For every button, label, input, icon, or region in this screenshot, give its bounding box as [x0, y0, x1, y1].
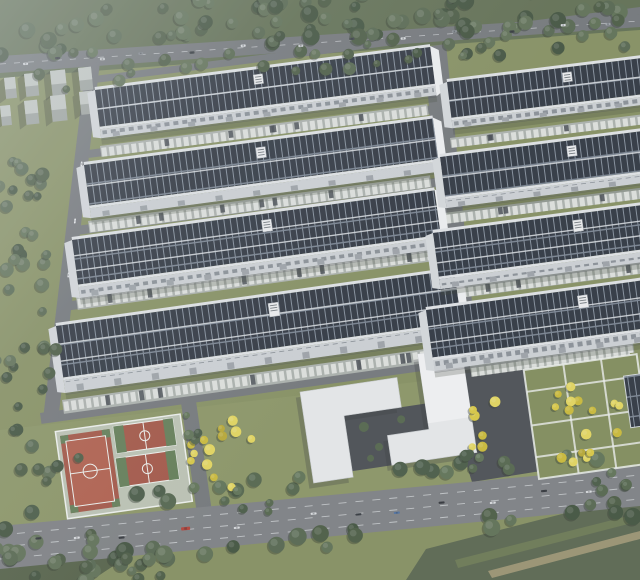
dock-door [533, 191, 541, 196]
tree-highlight [14, 245, 19, 250]
car-glass [140, 53, 142, 55]
parked-car [564, 125, 569, 132]
dock-door [355, 253, 363, 259]
tree-highlight [82, 562, 88, 568]
car-glass [81, 163, 82, 165]
tree-highlight [203, 461, 208, 466]
parked-car [359, 114, 364, 122]
tree-highlight [70, 49, 74, 53]
dock-door [188, 121, 196, 126]
tree-highlight [40, 344, 45, 349]
tree-highlight [14, 159, 18, 163]
car-glass [236, 527, 238, 528]
tree-highlight [627, 510, 635, 518]
tree-highlight [229, 542, 235, 548]
car-glass [102, 58, 104, 60]
rendering-canvas [0, 0, 640, 580]
dock-door [152, 373, 160, 380]
tree-highlight [3, 373, 8, 378]
tree-highlight [205, 446, 210, 451]
tree-highlight [201, 17, 207, 23]
dock-door [489, 276, 497, 282]
tree-highlight [345, 50, 350, 55]
tree-highlight [614, 429, 618, 433]
tree-highlight [388, 34, 394, 40]
tree-highlight [296, 46, 302, 52]
tree-highlight [470, 407, 474, 411]
tree-highlight [478, 44, 483, 49]
dock-door [634, 337, 640, 343]
tree-highlight [567, 507, 574, 514]
dock-door [279, 264, 287, 270]
tree-highlight [5, 285, 10, 290]
car-glass [121, 537, 123, 538]
tree-highlight [21, 344, 26, 349]
tree-highlight [365, 42, 368, 45]
dock-door [242, 269, 250, 275]
tree-highlight [374, 61, 377, 64]
tree-highlight [53, 461, 58, 466]
tree-highlight [558, 454, 563, 459]
tree-highlight [582, 430, 587, 435]
tree-highlight [462, 26, 468, 32]
tree-highlight [566, 407, 570, 411]
car-glass [300, 45, 302, 47]
tree-highlight [479, 443, 484, 448]
car-glass [607, 23, 609, 25]
tree-highlight [259, 62, 264, 67]
dock-door [339, 102, 347, 107]
tree-highlight [486, 38, 491, 43]
dock-door [227, 362, 235, 369]
dock-door [264, 357, 272, 364]
tree-highlight [118, 544, 126, 552]
block-roof [78, 67, 92, 81]
car-glass [37, 538, 39, 539]
block-roof [24, 100, 38, 114]
car [509, 30, 514, 33]
tree-highlight [85, 546, 92, 553]
tree-highlight [11, 255, 16, 260]
tree-highlight [2, 264, 8, 270]
tree-highlight [219, 426, 222, 429]
dock-door [558, 347, 566, 353]
dock-door [366, 175, 374, 181]
tree-highlight [229, 417, 234, 422]
dock-door [609, 182, 617, 187]
car [605, 23, 610, 26]
tree-highlight [395, 464, 402, 471]
car [241, 44, 246, 47]
tree-highlight [312, 50, 316, 54]
tree-highlight [353, 31, 360, 38]
dock-door [565, 266, 573, 272]
tree-highlight [491, 398, 496, 403]
block-roof [50, 94, 66, 110]
tree-highlight [596, 2, 601, 7]
tree-highlight [219, 432, 223, 436]
tree-highlight [176, 12, 183, 19]
dock-door [571, 186, 579, 191]
tree-highlight [249, 474, 256, 481]
car-glass [242, 45, 244, 47]
dock-door [226, 116, 234, 121]
tree-highlight [479, 432, 483, 436]
tree-highlight [579, 32, 584, 37]
dock-door [615, 103, 622, 108]
tree-highlight [115, 76, 120, 81]
car-glass [68, 274, 69, 276]
dock-door [527, 271, 535, 277]
tree-highlight [43, 477, 47, 481]
tree-highlight [623, 482, 627, 486]
car-glass [588, 491, 590, 492]
tree-highlight [414, 49, 418, 53]
parked-car [294, 122, 299, 130]
dock-door [114, 378, 122, 385]
tree-highlight [520, 17, 526, 23]
tree-highlight [37, 280, 43, 286]
tree-highlight [260, 4, 266, 10]
tree-highlight [89, 535, 95, 541]
tree-highlight [273, 17, 278, 22]
tree-highlight [321, 14, 327, 20]
tree-highlight [295, 473, 300, 478]
dock-door [91, 289, 99, 295]
tree-highlight [288, 484, 294, 490]
tree-highlight [248, 436, 252, 440]
car [100, 58, 105, 61]
parked-car [489, 134, 494, 141]
tree-highlight [614, 16, 620, 22]
tree-highlight [500, 457, 506, 463]
tree-highlight [552, 14, 559, 21]
tree-highlight [148, 542, 155, 549]
tree-highlight [504, 465, 509, 470]
tree-highlight [232, 428, 237, 433]
tree-highlight [554, 43, 560, 49]
tree-highlight [161, 55, 166, 60]
dock-door [577, 108, 584, 113]
dock-door [414, 92, 422, 97]
tree-highlight [255, 28, 260, 33]
tree-highlight [226, 50, 231, 55]
tree-highlight [122, 554, 127, 559]
tree-highlight [103, 5, 108, 10]
tree-highlight [45, 467, 51, 473]
dock-door [76, 383, 84, 390]
car-glass [402, 38, 404, 40]
tree-highlight [215, 482, 221, 488]
dock-door [102, 210, 110, 216]
tree-highlight [91, 13, 98, 20]
tree-highlight [344, 20, 348, 24]
car-glass [76, 537, 78, 538]
tree-highlight [621, 43, 626, 48]
dock-door [215, 195, 223, 201]
dock-door [328, 180, 336, 186]
dock-door [253, 190, 261, 196]
dock-door [317, 259, 325, 265]
tree-highlight [484, 510, 491, 517]
tree-highlight [35, 70, 40, 75]
tree-highlight [201, 437, 205, 441]
tree-highlight [276, 32, 280, 36]
tree-highlight [505, 22, 511, 28]
car [401, 37, 406, 40]
car-glass [396, 512, 398, 513]
car-glass [184, 527, 187, 530]
dock-door [392, 248, 400, 254]
dock-door [340, 346, 348, 353]
tree-highlight [240, 505, 244, 509]
tree-highlight [131, 488, 138, 495]
tree-highlight [162, 495, 169, 502]
car [23, 62, 28, 65]
tree-highlight [222, 497, 226, 501]
tree-highlight [304, 7, 312, 15]
tree-highlight [71, 19, 77, 25]
tree-highlight [368, 29, 374, 35]
tree-highlight [305, 30, 313, 38]
tree-highlight [39, 385, 43, 389]
tree-highlight [417, 10, 424, 17]
dock-door [302, 351, 310, 358]
tree-highlight [134, 574, 139, 579]
tree-highlight [124, 60, 129, 65]
tree-highlight [476, 454, 480, 458]
tree-highlight [50, 558, 56, 564]
tree-highlight [10, 186, 14, 190]
car-glass [511, 31, 513, 33]
tree-highlight [195, 430, 199, 434]
dock-door [496, 196, 504, 201]
tree-highlight [155, 486, 160, 491]
tree-highlight [228, 484, 232, 488]
tree-highlight [199, 548, 206, 555]
tree-highlight [442, 467, 448, 473]
aerial-industrial-park-rendering [0, 0, 640, 580]
roof-label [261, 219, 272, 232]
tree-highlight [234, 487, 238, 491]
dock-door [445, 362, 453, 368]
car [55, 57, 60, 60]
tree-highlight [228, 19, 233, 24]
dock-door [539, 112, 546, 117]
tree-highlight [405, 56, 409, 60]
dock-door [150, 126, 158, 131]
car-glass [191, 52, 193, 54]
tree-highlight [89, 48, 94, 53]
tree-highlight [185, 431, 189, 435]
tree-highlight [184, 413, 187, 416]
dock-door [204, 274, 212, 280]
tree-highlight [50, 48, 57, 55]
tree-highlight [178, 27, 185, 34]
car [298, 44, 303, 47]
tree-highlight [37, 169, 43, 175]
car [189, 51, 194, 54]
tree-highlight [291, 530, 299, 538]
tree-highlight [191, 451, 194, 454]
dock-door [377, 341, 385, 348]
dock-door [502, 117, 509, 122]
tree-highlight [553, 404, 556, 407]
tree-highlight [144, 554, 150, 560]
tree-highlight [321, 64, 327, 70]
dock-door [464, 122, 471, 127]
dock-door [189, 367, 197, 374]
tree-highlight [567, 398, 571, 402]
tree-highlight [129, 568, 133, 572]
dock-door [166, 279, 174, 285]
tree-highlight [34, 465, 39, 470]
dock-door [602, 261, 610, 267]
tree-highlight [586, 500, 591, 505]
car [349, 37, 354, 40]
parked-car [503, 206, 508, 214]
tree-highlight [460, 53, 463, 56]
tree-highlight [314, 527, 322, 535]
tree-highlight [182, 63, 187, 68]
tree-highlight [323, 543, 328, 548]
tree-highlight [593, 478, 597, 482]
tree-highlight [26, 507, 33, 514]
roof-label [268, 302, 280, 317]
tree-highlight [470, 444, 473, 447]
tree-highlight [211, 475, 214, 478]
tree-highlight [17, 465, 23, 471]
car [138, 52, 143, 55]
block-roof [0, 105, 11, 117]
dock-door [178, 200, 186, 206]
car-glass [25, 63, 27, 65]
tree-highlight [616, 403, 620, 407]
tree-highlight [469, 465, 473, 469]
tree-highlight [545, 26, 550, 31]
dock-door [458, 201, 466, 206]
dock-door [291, 185, 299, 191]
tree-highlight [27, 441, 33, 447]
tree-highlight [43, 251, 47, 255]
tree-highlight [293, 67, 297, 71]
tree-highlight [109, 31, 115, 37]
dock-door [129, 284, 137, 290]
tree-highlight [15, 403, 19, 407]
tree-highlight [22, 228, 27, 233]
tree-highlight [51, 345, 57, 351]
tree-highlight [416, 461, 423, 468]
parked-car [498, 207, 503, 215]
tree-highlight [507, 516, 512, 521]
tree-highlight [502, 31, 507, 36]
block-roof [4, 77, 16, 90]
tree-highlight [197, 59, 203, 65]
tree-highlight [610, 507, 617, 514]
tree-highlight [269, 37, 274, 42]
tree-highlight [350, 530, 357, 537]
parked-car [228, 131, 233, 139]
tree-highlight [188, 458, 191, 461]
tree-highlight [436, 10, 440, 14]
tree-highlight [6, 356, 11, 361]
tree-highlight [75, 454, 79, 458]
parked-car [271, 125, 276, 133]
tree-highlight [598, 486, 603, 491]
tree-highlight [270, 1, 277, 8]
tree-highlight [606, 28, 612, 34]
tree-highlight [555, 392, 558, 395]
tree-highlight [28, 175, 33, 180]
tree-highlight [485, 521, 493, 529]
tree-highlight [29, 231, 34, 236]
dock-door [483, 357, 491, 363]
dock-door [376, 97, 384, 102]
tree-highlight [155, 33, 161, 39]
tree-highlight [578, 4, 584, 10]
tree-highlight [158, 548, 166, 556]
tree-highlight [17, 164, 23, 170]
tree-highlight [157, 572, 161, 576]
car-glass [357, 514, 359, 515]
tree-highlight [10, 427, 15, 432]
tree-highlight [587, 450, 591, 454]
block-roof [50, 69, 66, 84]
tree-highlight [160, 4, 165, 9]
tree-highlight [461, 451, 466, 456]
dock-door [140, 205, 148, 211]
car [561, 24, 566, 27]
tree-highlight [267, 500, 270, 503]
car-glass [492, 502, 494, 503]
tree-highlight [495, 51, 501, 57]
car-glass [57, 57, 59, 59]
car-glass [441, 502, 443, 503]
car-glass [351, 38, 353, 40]
tree-highlight [40, 308, 44, 312]
tree-highlight [58, 24, 63, 29]
tree-highlight [43, 34, 50, 41]
tree-highlight [345, 64, 351, 70]
tree-highlight [445, 40, 450, 45]
dock-door [521, 352, 529, 358]
tree-highlight [270, 539, 277, 546]
tree-highlight [31, 536, 38, 543]
car-glass [74, 220, 75, 222]
tree-highlight [266, 508, 270, 512]
parked-car [600, 194, 605, 202]
tree-highlight [352, 3, 356, 7]
tree-highlight [22, 24, 29, 31]
car-glass [562, 24, 564, 26]
tree-highlight [35, 193, 39, 197]
dock-door [452, 281, 460, 287]
tree-highlight [611, 401, 615, 405]
tree-highlight [570, 458, 574, 462]
tree-highlight [590, 408, 593, 411]
dock-door [263, 112, 271, 117]
car-glass [454, 31, 456, 33]
tree-highlight [32, 572, 37, 577]
tree-highlight [45, 369, 50, 374]
car-glass [313, 513, 315, 514]
tree-highlight [168, 32, 172, 36]
tree-highlight [5, 552, 12, 559]
tree-highlight [567, 383, 571, 387]
dock-door [301, 107, 309, 112]
tree-highlight [190, 484, 195, 489]
car-glass [543, 490, 545, 491]
